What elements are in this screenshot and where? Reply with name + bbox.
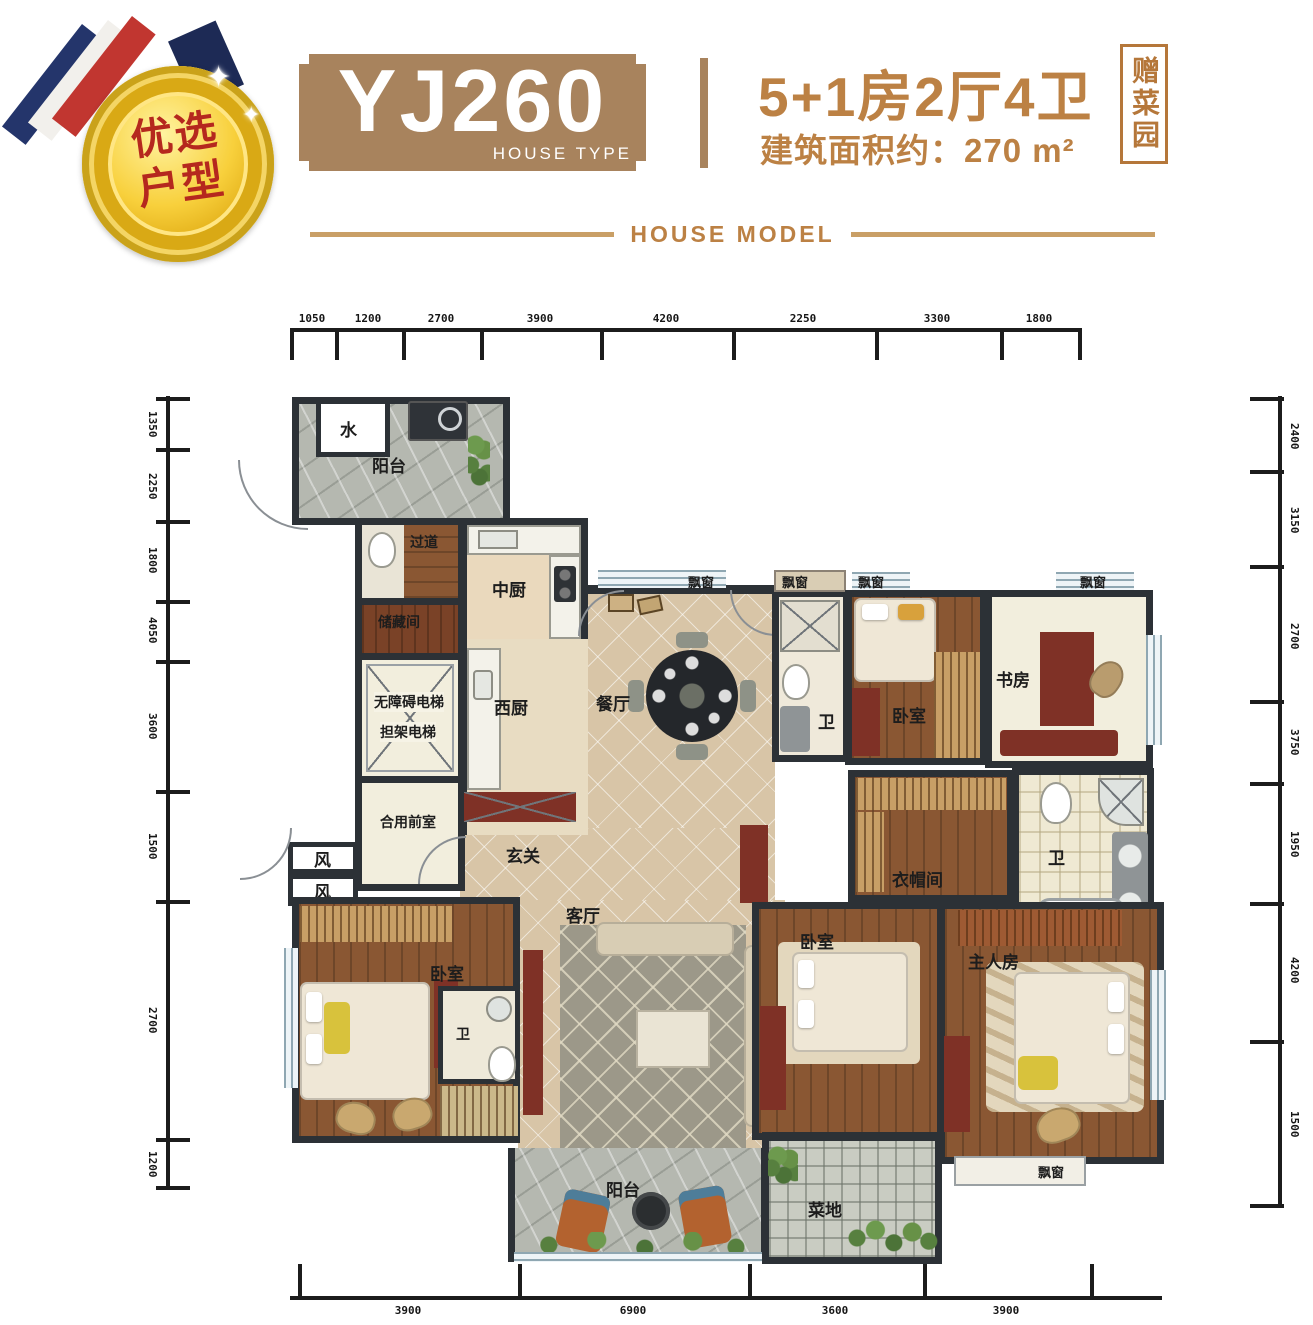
closet [440,1086,518,1136]
dim-tick [156,397,190,401]
dim-tick [156,520,190,524]
dim-value: 1950 [1288,816,1301,872]
dim-tick [290,330,294,360]
bay-window-label: 飘窗 [1080,572,1106,591]
shower-box [780,600,840,652]
dim-value: 3600 [146,698,159,754]
dim-value: 1800 [1014,312,1064,325]
dim-tick [335,330,339,360]
model-plaque: YJ260 HOUSE TYPE [299,54,646,171]
room-label-kitchen-cn: 中厨 [492,576,526,601]
dim-tick [1078,330,1082,360]
dim-value: 2250 [146,458,159,514]
master-bed [1014,972,1130,1104]
dim-tick [923,1264,927,1296]
medal-coin: 优选 户型 [82,66,274,262]
poster: 优选 户型 ✦ ✦ ✦ YJ260 HOUSE TYPE 5+1房2厅4卫 建筑… [0,0,1313,1325]
dim-value: 1200 [146,1142,159,1186]
dim-value: 1200 [343,312,393,325]
model-code: YJ260 [299,50,646,152]
dining-chair [676,744,708,760]
bay-window-label: 飘窗 [1038,1162,1064,1181]
pillow [798,1000,814,1028]
elevator-x-mark [366,664,454,772]
bay-window-label: 飘窗 [858,572,884,591]
washer-drum-icon [438,407,462,431]
room-label-corridor: 过道 [410,532,438,552]
dim-value: 3750 [1288,714,1301,770]
room-label-wind1: 风 [314,846,331,871]
dim-line-bottom [290,1296,1162,1300]
room-label-bedroom1: 卧室 [430,960,464,985]
dim-tick [402,330,406,360]
wardrobe [856,812,884,892]
dim-value: 3900 [378,1304,438,1317]
dim-value: 2250 [778,312,828,325]
stove-icon [554,566,576,602]
dining-chair [740,680,756,712]
dim-value: 2700 [1288,608,1301,664]
spec-rooms: 5+1房2厅4卫 [758,52,1093,132]
room-label-living: 客厅 [566,902,600,927]
tv-console [523,950,543,1115]
toilet-icon [368,532,396,568]
pillow [798,960,814,988]
dim-value: 1350 [146,402,159,446]
study-desk [1040,632,1094,726]
bed [792,952,908,1052]
dim-tick [156,790,190,794]
room-label-water: 水 [340,416,357,441]
dim-value: 3600 [805,1304,865,1317]
dim-value: 2700 [416,312,466,325]
model-subtitle: HOUSE TYPE [493,144,632,164]
pillow [862,604,888,620]
foyer-cabinet [740,825,768,903]
room-label-balcony-top: 阳台 [372,452,406,477]
dim-tick [1250,397,1284,401]
room-label-elevator1: 无障碍电梯 [374,692,444,712]
garden-bushes [846,1218,938,1258]
dim-tick [1250,902,1284,906]
dim-value: 4200 [641,312,691,325]
wardrobe [300,906,452,942]
dim-value: 3900 [976,1304,1036,1317]
room-label-storage: 储藏间 [378,612,420,632]
dim-tick [1250,1204,1284,1208]
floor-plan: 水 阳台 过道 储藏间 无障碍电梯 担架电梯 合用前室 风 风 中厨 [0,280,1313,1325]
door-arc [238,460,308,530]
pillow [1108,1024,1124,1054]
dim-tick [1250,1040,1284,1044]
dim-tick [518,1264,522,1296]
desk [760,1006,786,1110]
welcome-mat [608,594,634,612]
dim-value: 4050 [146,602,159,658]
wardrobe [856,778,1006,810]
pillow [306,1034,322,1064]
header-separator [700,58,708,168]
pillow [898,604,924,620]
divider-text: HOUSE MODEL [630,221,834,248]
dim-value: 1500 [1288,1096,1301,1152]
sofa-top [596,922,734,956]
dim-value: 3150 [1288,492,1301,548]
dining-table [646,650,738,742]
dining-chair [676,632,708,648]
window-side [1150,970,1166,1100]
bed [300,982,430,1100]
room-label-foyer: 玄关 [506,842,540,867]
dim-tick [1250,782,1284,786]
room-label-master: 主人房 [968,948,1019,973]
dim-tick [1090,1264,1094,1296]
window-side [1146,635,1162,745]
dim-value: 3300 [912,312,962,325]
room-label-dining: 餐厅 [596,690,630,715]
dim-tick [1000,330,1004,360]
dim-tick [156,1186,190,1190]
room-label-kitchen-w: 西厨 [494,694,528,719]
dim-value: 6900 [603,1304,663,1317]
dim-tick [298,1264,302,1296]
sparkle-icon: ✦ [242,102,260,128]
throw-blanket [324,1002,350,1054]
desk [944,1036,970,1132]
garden-bushes [768,1138,798,1198]
room-label-bath2: 卫 [818,708,835,733]
island-cabinet [464,792,576,822]
balcony-plants [468,415,490,515]
dim-tick [480,330,484,360]
dim-tick [1250,565,1284,569]
dining-chair [628,680,644,712]
balcony-railing [514,1252,762,1262]
dim-tick [156,600,190,604]
toilet-icon [488,1046,516,1082]
section-divider: HOUSE MODEL [310,222,1155,246]
room-label-garden: 菜地 [808,1196,842,1221]
room-label-lobby: 合用前室 [380,812,436,832]
dim-tick [1250,700,1284,704]
pillow [306,992,322,1022]
room-label-balcony-bottom: 阳台 [606,1176,640,1201]
room-label-bedroom2: 卧室 [892,702,926,727]
sink-icon [478,530,518,549]
dim-value: 4200 [1288,942,1301,998]
spec-area: 建筑面积约：270 m² [760,124,1075,172]
dim-line-right [1278,396,1282,1208]
toilet-icon [1040,782,1072,824]
wardrobe [934,652,980,758]
room-label-bath3: 卫 [1048,844,1065,869]
dim-tick [1250,470,1284,474]
desk [852,688,880,756]
wardrobe [958,910,1122,946]
dim-line-top [290,328,1082,332]
throw-blanket [1018,1056,1058,1090]
room-label-bath1: 卫 [456,1024,470,1044]
vertical-seal-badge: 赠菜园 [1120,44,1168,164]
study-sofa [1000,730,1118,756]
toilet-icon [782,664,810,700]
sparkle-icon: ✦ [206,60,231,95]
bed [854,598,936,682]
coffee-table [636,1010,710,1068]
dim-tick [156,660,190,664]
room-label-cloak: 衣帽间 [892,866,943,891]
medal-badge: 优选 户型 ✦ ✦ ✦ [30,18,270,258]
dim-value: 1800 [146,532,159,588]
room-label-bedroom3: 卧室 [800,928,834,953]
divider-line [851,232,1155,237]
dim-value: 2400 [1288,408,1301,464]
bay-window-label: 飘窗 [688,572,714,591]
room-label-study: 书房 [996,666,1030,691]
vanity-sink [486,996,512,1022]
foyer [460,828,775,908]
dim-value: 1500 [146,818,159,874]
divider-line [310,232,614,237]
dim-value: 3900 [515,312,565,325]
dim-tick [156,1138,190,1142]
dim-tick [748,1264,752,1296]
bay-window-label: 飘窗 [782,572,808,591]
door-arc [240,828,292,880]
dim-tick [732,330,736,360]
dim-tick [600,330,604,360]
room-label-elevator2: 担架电梯 [380,722,436,742]
dim-tick [875,330,879,360]
dim-value: 1050 [287,312,337,325]
vanity-sink [780,706,810,752]
window-side [284,948,298,1088]
dim-tick [156,900,190,904]
dim-tick [156,448,190,452]
sink-icon [473,670,493,700]
bay-window-seat [954,1156,1086,1186]
pillow [1108,982,1124,1012]
dim-value: 2700 [146,992,159,1048]
